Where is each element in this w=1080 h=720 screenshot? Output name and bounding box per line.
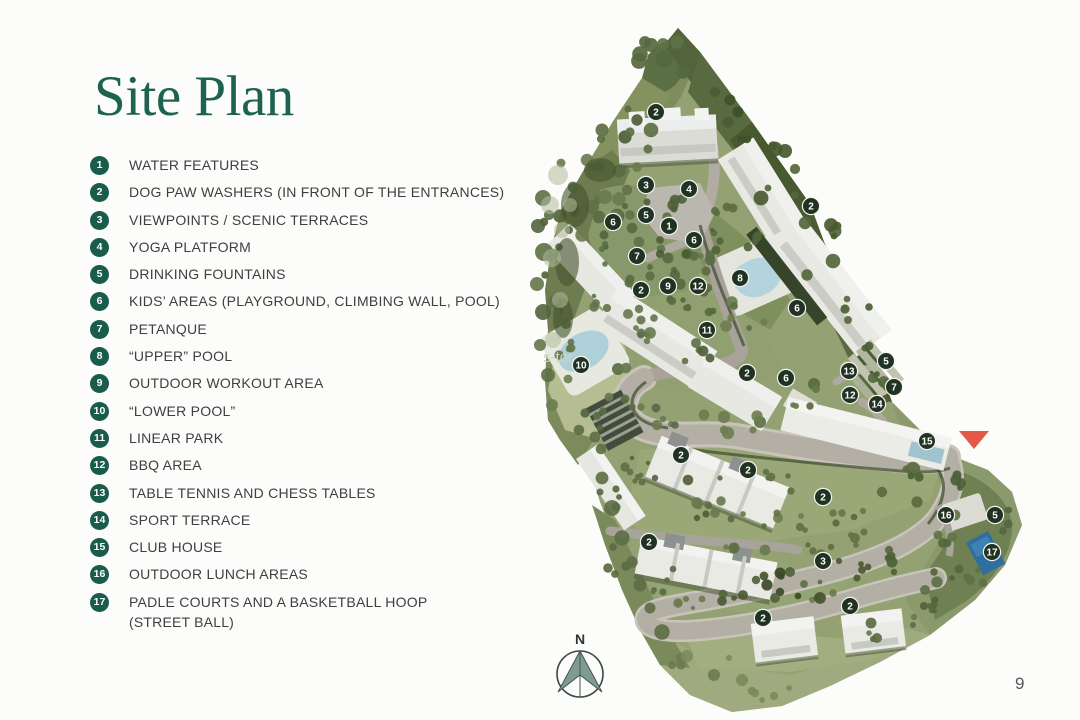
svg-text:7: 7 <box>634 252 640 263</box>
svg-text:3: 3 <box>820 557 826 568</box>
svg-text:2: 2 <box>646 538 652 549</box>
svg-text:10: 10 <box>575 361 587 372</box>
svg-text:12: 12 <box>692 282 704 293</box>
svg-text:7: 7 <box>891 383 897 394</box>
svg-text:16: 16 <box>940 511 952 522</box>
svg-text:2: 2 <box>847 602 853 613</box>
svg-text:N: N <box>575 631 585 647</box>
svg-text:2: 2 <box>744 369 750 380</box>
svg-text:5: 5 <box>643 211 649 222</box>
svg-text:8: 8 <box>737 274 743 285</box>
svg-text:6: 6 <box>794 304 800 315</box>
svg-text:2: 2 <box>678 451 684 462</box>
svg-text:6: 6 <box>691 236 697 247</box>
svg-text:15: 15 <box>921 437 933 448</box>
svg-text:17: 17 <box>986 548 998 559</box>
svg-text:12: 12 <box>844 391 856 402</box>
svg-text:6: 6 <box>783 374 789 385</box>
svg-text:2: 2 <box>820 493 826 504</box>
svg-text:2: 2 <box>745 466 751 477</box>
svg-text:11: 11 <box>702 326 713 337</box>
svg-text:9: 9 <box>665 282 671 293</box>
svg-text:6: 6 <box>610 218 616 229</box>
svg-text:1: 1 <box>666 222 672 233</box>
svg-text:3: 3 <box>643 181 649 192</box>
svg-text:5: 5 <box>883 357 889 368</box>
svg-text:4: 4 <box>686 185 692 196</box>
svg-text:13: 13 <box>843 367 855 378</box>
svg-text:2: 2 <box>638 286 644 297</box>
svg-text:2: 2 <box>808 202 814 213</box>
svg-text:s-tor: s-tor <box>543 349 573 366</box>
svg-text:14: 14 <box>871 400 883 411</box>
svg-text:2: 2 <box>653 108 659 119</box>
svg-text:2: 2 <box>760 614 766 625</box>
svg-text:5: 5 <box>992 511 998 522</box>
